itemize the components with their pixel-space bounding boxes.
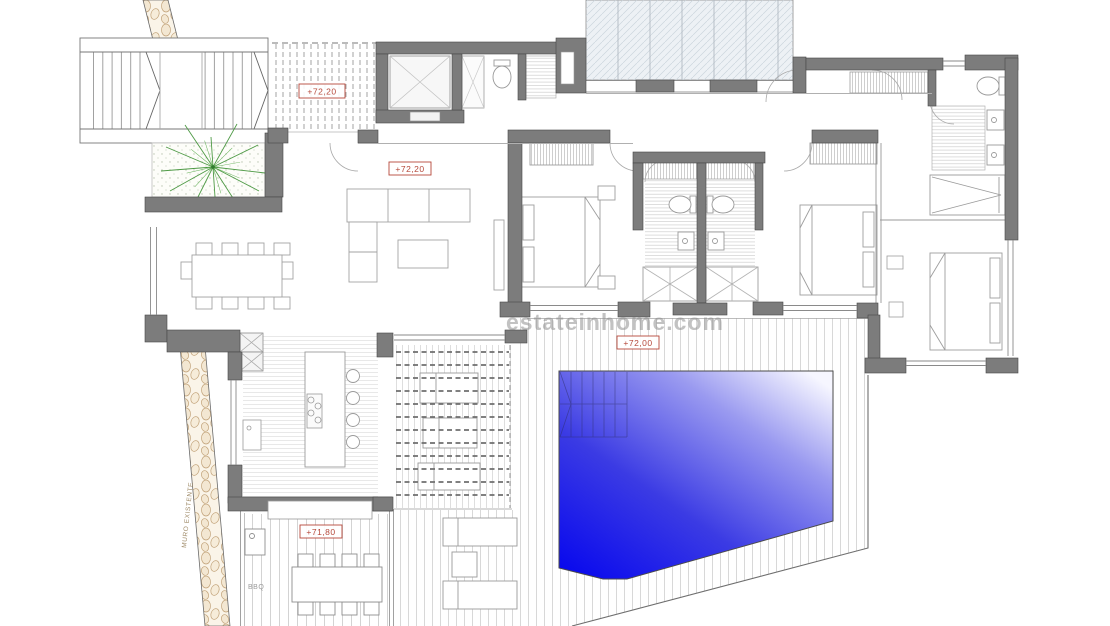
dining-table bbox=[192, 255, 282, 297]
interior-stairs bbox=[526, 56, 556, 98]
level-label-terrace: +71,80 bbox=[300, 525, 342, 538]
level-label-living: +72,20 bbox=[389, 162, 431, 175]
skylight bbox=[586, 0, 793, 92]
bed-master bbox=[930, 253, 1002, 350]
svg-text:+72,20: +72,20 bbox=[395, 164, 424, 174]
svg-text:+72,20: +72,20 bbox=[307, 87, 336, 97]
wardrobe-bedroom-2 bbox=[810, 143, 877, 164]
wardrobe-bedroom-1 bbox=[530, 143, 593, 165]
toilet-master bbox=[977, 77, 1005, 95]
svg-text:+71,80: +71,80 bbox=[306, 527, 335, 537]
shower-master bbox=[930, 175, 1005, 215]
wardrobe-master bbox=[932, 106, 985, 170]
bed-bedroom-2 bbox=[800, 205, 877, 295]
floor-plan-drawing: estateinhome.com MURO EXISTENTE bbox=[0, 0, 1110, 626]
core bbox=[390, 52, 574, 108]
door-bedroom-2 bbox=[784, 143, 812, 171]
hall-closet bbox=[850, 72, 932, 93]
toilet-core bbox=[493, 60, 511, 88]
kitchen-counter bbox=[243, 420, 261, 450]
pergola bbox=[394, 345, 512, 509]
bench bbox=[887, 256, 903, 269]
kitchen bbox=[240, 333, 378, 497]
exterior-staircase bbox=[80, 38, 268, 143]
bed-bedroom-1 bbox=[520, 197, 600, 287]
existing-wall-note: MURO EXISTENTE bbox=[181, 482, 195, 549]
bench bbox=[889, 302, 903, 317]
nightstand bbox=[598, 276, 615, 289]
coffee-table bbox=[398, 240, 448, 268]
nightstand bbox=[598, 186, 615, 200]
bbq-counter bbox=[245, 529, 265, 555]
level-label-pool-deck: +72,00 bbox=[617, 336, 659, 349]
level-label-upper-deck: +72,20 bbox=[299, 84, 345, 98]
svg-text:+72,00: +72,00 bbox=[623, 338, 652, 348]
door-living bbox=[330, 143, 358, 171]
bedroom-1 bbox=[520, 143, 615, 289]
outdoor-table bbox=[292, 567, 382, 602]
hob bbox=[307, 394, 322, 428]
bedroom-2 bbox=[800, 143, 881, 303]
tv-unit bbox=[494, 220, 504, 290]
bbq-label: BBQ bbox=[248, 584, 264, 591]
outdoor-counter bbox=[268, 501, 372, 519]
floor-plan: estateinhome.com MURO EXISTENTE bbox=[0, 0, 1110, 626]
sinks-master bbox=[987, 110, 1004, 165]
pantry-units bbox=[240, 333, 263, 371]
